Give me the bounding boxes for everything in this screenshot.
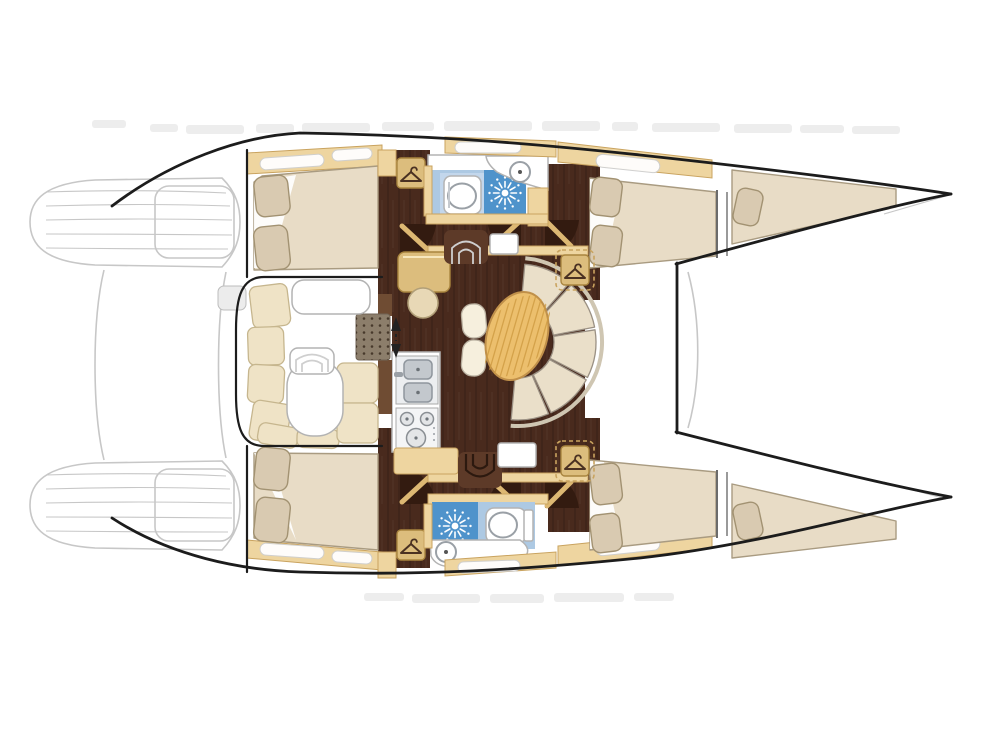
cockpit-cushion <box>247 364 285 404</box>
bench-seat <box>461 303 488 339</box>
galley-cabinet <box>394 448 458 474</box>
catamaran-floor-plan <box>0 0 984 738</box>
hatch-window <box>332 148 373 162</box>
pillow <box>253 224 291 271</box>
floor-plan-canvas <box>0 0 984 738</box>
aft-cabin-port <box>247 145 396 272</box>
pillow <box>589 224 624 267</box>
transom-steps-icon <box>290 348 334 374</box>
locker-forward-starboard <box>556 441 594 481</box>
stool <box>408 288 438 318</box>
cockpit-cushion <box>247 326 284 365</box>
wardrobe-port <box>397 158 425 188</box>
foredeck-edge <box>688 272 698 428</box>
aft-cabin-starboard <box>247 446 396 578</box>
wall <box>424 166 432 216</box>
cabinet <box>378 150 396 176</box>
hatch-window <box>332 551 373 565</box>
pillow <box>253 496 291 543</box>
door-jamb <box>378 360 392 414</box>
bathroom-port <box>424 155 548 226</box>
door-jamb <box>378 294 392 316</box>
pillow <box>589 512 623 553</box>
toilet-icon <box>444 176 481 214</box>
wall <box>424 504 432 548</box>
wall <box>426 214 548 224</box>
cockpit-seat <box>292 280 370 314</box>
cockpit-cushion <box>249 283 292 329</box>
toilet-icon <box>486 508 533 543</box>
pillow <box>589 176 623 217</box>
faucet <box>394 372 403 377</box>
wardrobe-starboard <box>397 530 425 560</box>
pillow <box>253 174 291 217</box>
locker-forward-port <box>556 250 594 290</box>
bench-seat <box>460 339 487 377</box>
aft-cockpit <box>218 280 378 449</box>
forward-cabin-starboard <box>558 460 896 566</box>
pillow <box>253 446 291 491</box>
